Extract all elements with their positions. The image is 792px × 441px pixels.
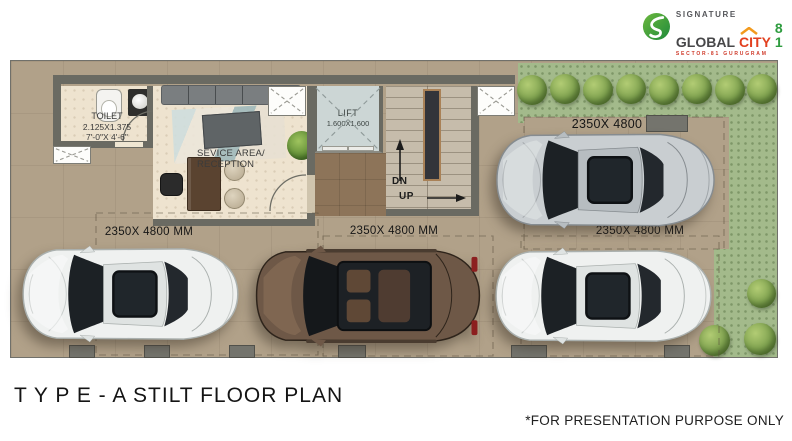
bush-icon [747,279,776,308]
wheel-stopper [69,345,95,358]
guest-chair [224,188,245,209]
brand-logo: SIGNATURE GLOBAL CITY 8 1 SECTOR-81 GURU… [642,11,792,57]
wall [153,219,315,226]
coffee-table [202,111,262,149]
bush-icon [583,75,613,105]
lift-label: LIFT 1.600X1.600 [317,108,379,128]
wall [53,75,515,84]
toilet-dim-m: 2.125X1.375 [55,122,159,133]
disclaimer-text: *FOR PRESENTATION PURPOSE ONLY [525,413,784,428]
stair-railing [423,89,441,181]
column-marker-icon [477,86,515,116]
parking-dim-bottom-left: 2350X 4800 MM [79,226,219,238]
car-sedan-silver [491,129,719,231]
car-sedan-white-right [489,247,717,345]
lift-lobby-floor [313,153,386,216]
lift-shaft: LIFT 1.600X1.600 [313,86,383,153]
bush-icon [616,74,646,104]
washbasin-icon [132,94,148,109]
wall [386,209,479,216]
toilet-name: TOILET [55,111,159,122]
lift-name: LIFT [317,108,379,119]
car-suv-brown [249,244,487,348]
floor-plan-canvas: LIFT 1.600X1.600 DN UP [10,60,778,358]
bush-icon [517,75,547,105]
brand-tagline: SECTOR-81 GURUGRAM [676,52,792,57]
brand-signature: SIGNATURE [676,11,792,19]
brand-city-text: CITY [739,34,771,50]
door-opening [115,142,143,147]
door-opening [307,175,315,213]
wheel-stopper [511,345,547,358]
reception-line1: SEVICE AREA/ [197,148,315,159]
signature-global-logo-icon [642,11,671,42]
column-marker-icon [268,86,306,116]
bush-icon [682,74,712,104]
brand-city: CITY [739,35,771,49]
column-marker-icon [53,146,91,164]
reception-label: SEVICE AREA/ RECEPTION [197,148,315,170]
lift-door [348,146,374,151]
brand-logo-text: SIGNATURE GLOBAL CITY 8 1 SECTOR-81 GURU… [676,11,792,57]
brand-number: 8 1 [775,21,792,49]
reception-line2: RECEPTION [197,159,315,170]
bush-icon [550,74,580,104]
stairs-up-label: UP [399,191,414,202]
lift-door [322,146,348,151]
stilt-floor-plan-page: SIGNATURE GLOBAL CITY 8 1 SECTOR-81 GURU… [0,0,792,441]
stairs-down-label: DN [392,176,407,187]
wheel-stopper [144,345,170,358]
bush-icon [649,75,679,105]
roof-icon [740,27,758,35]
bush-icon [747,74,777,104]
wheel-stopper [664,345,690,358]
car-sedan-white-left [17,245,243,343]
toilet-label: TOILET 2.125X1.375 7'-0"X 4'-6" [55,111,159,143]
parking-dim-bottom-center: 2350X 4800 MM [324,225,464,237]
office-chair [160,173,183,196]
plan-title: T Y P E - A STILT FLOOR PLAN [14,384,343,408]
brand-global: GLOBAL [676,35,735,49]
lift-dimension: 1.600X1.600 [317,119,379,128]
bush-icon [744,323,776,355]
toilet-dim-ft: 7'-0"X 4'-6" [55,132,159,143]
bush-icon [715,75,745,105]
